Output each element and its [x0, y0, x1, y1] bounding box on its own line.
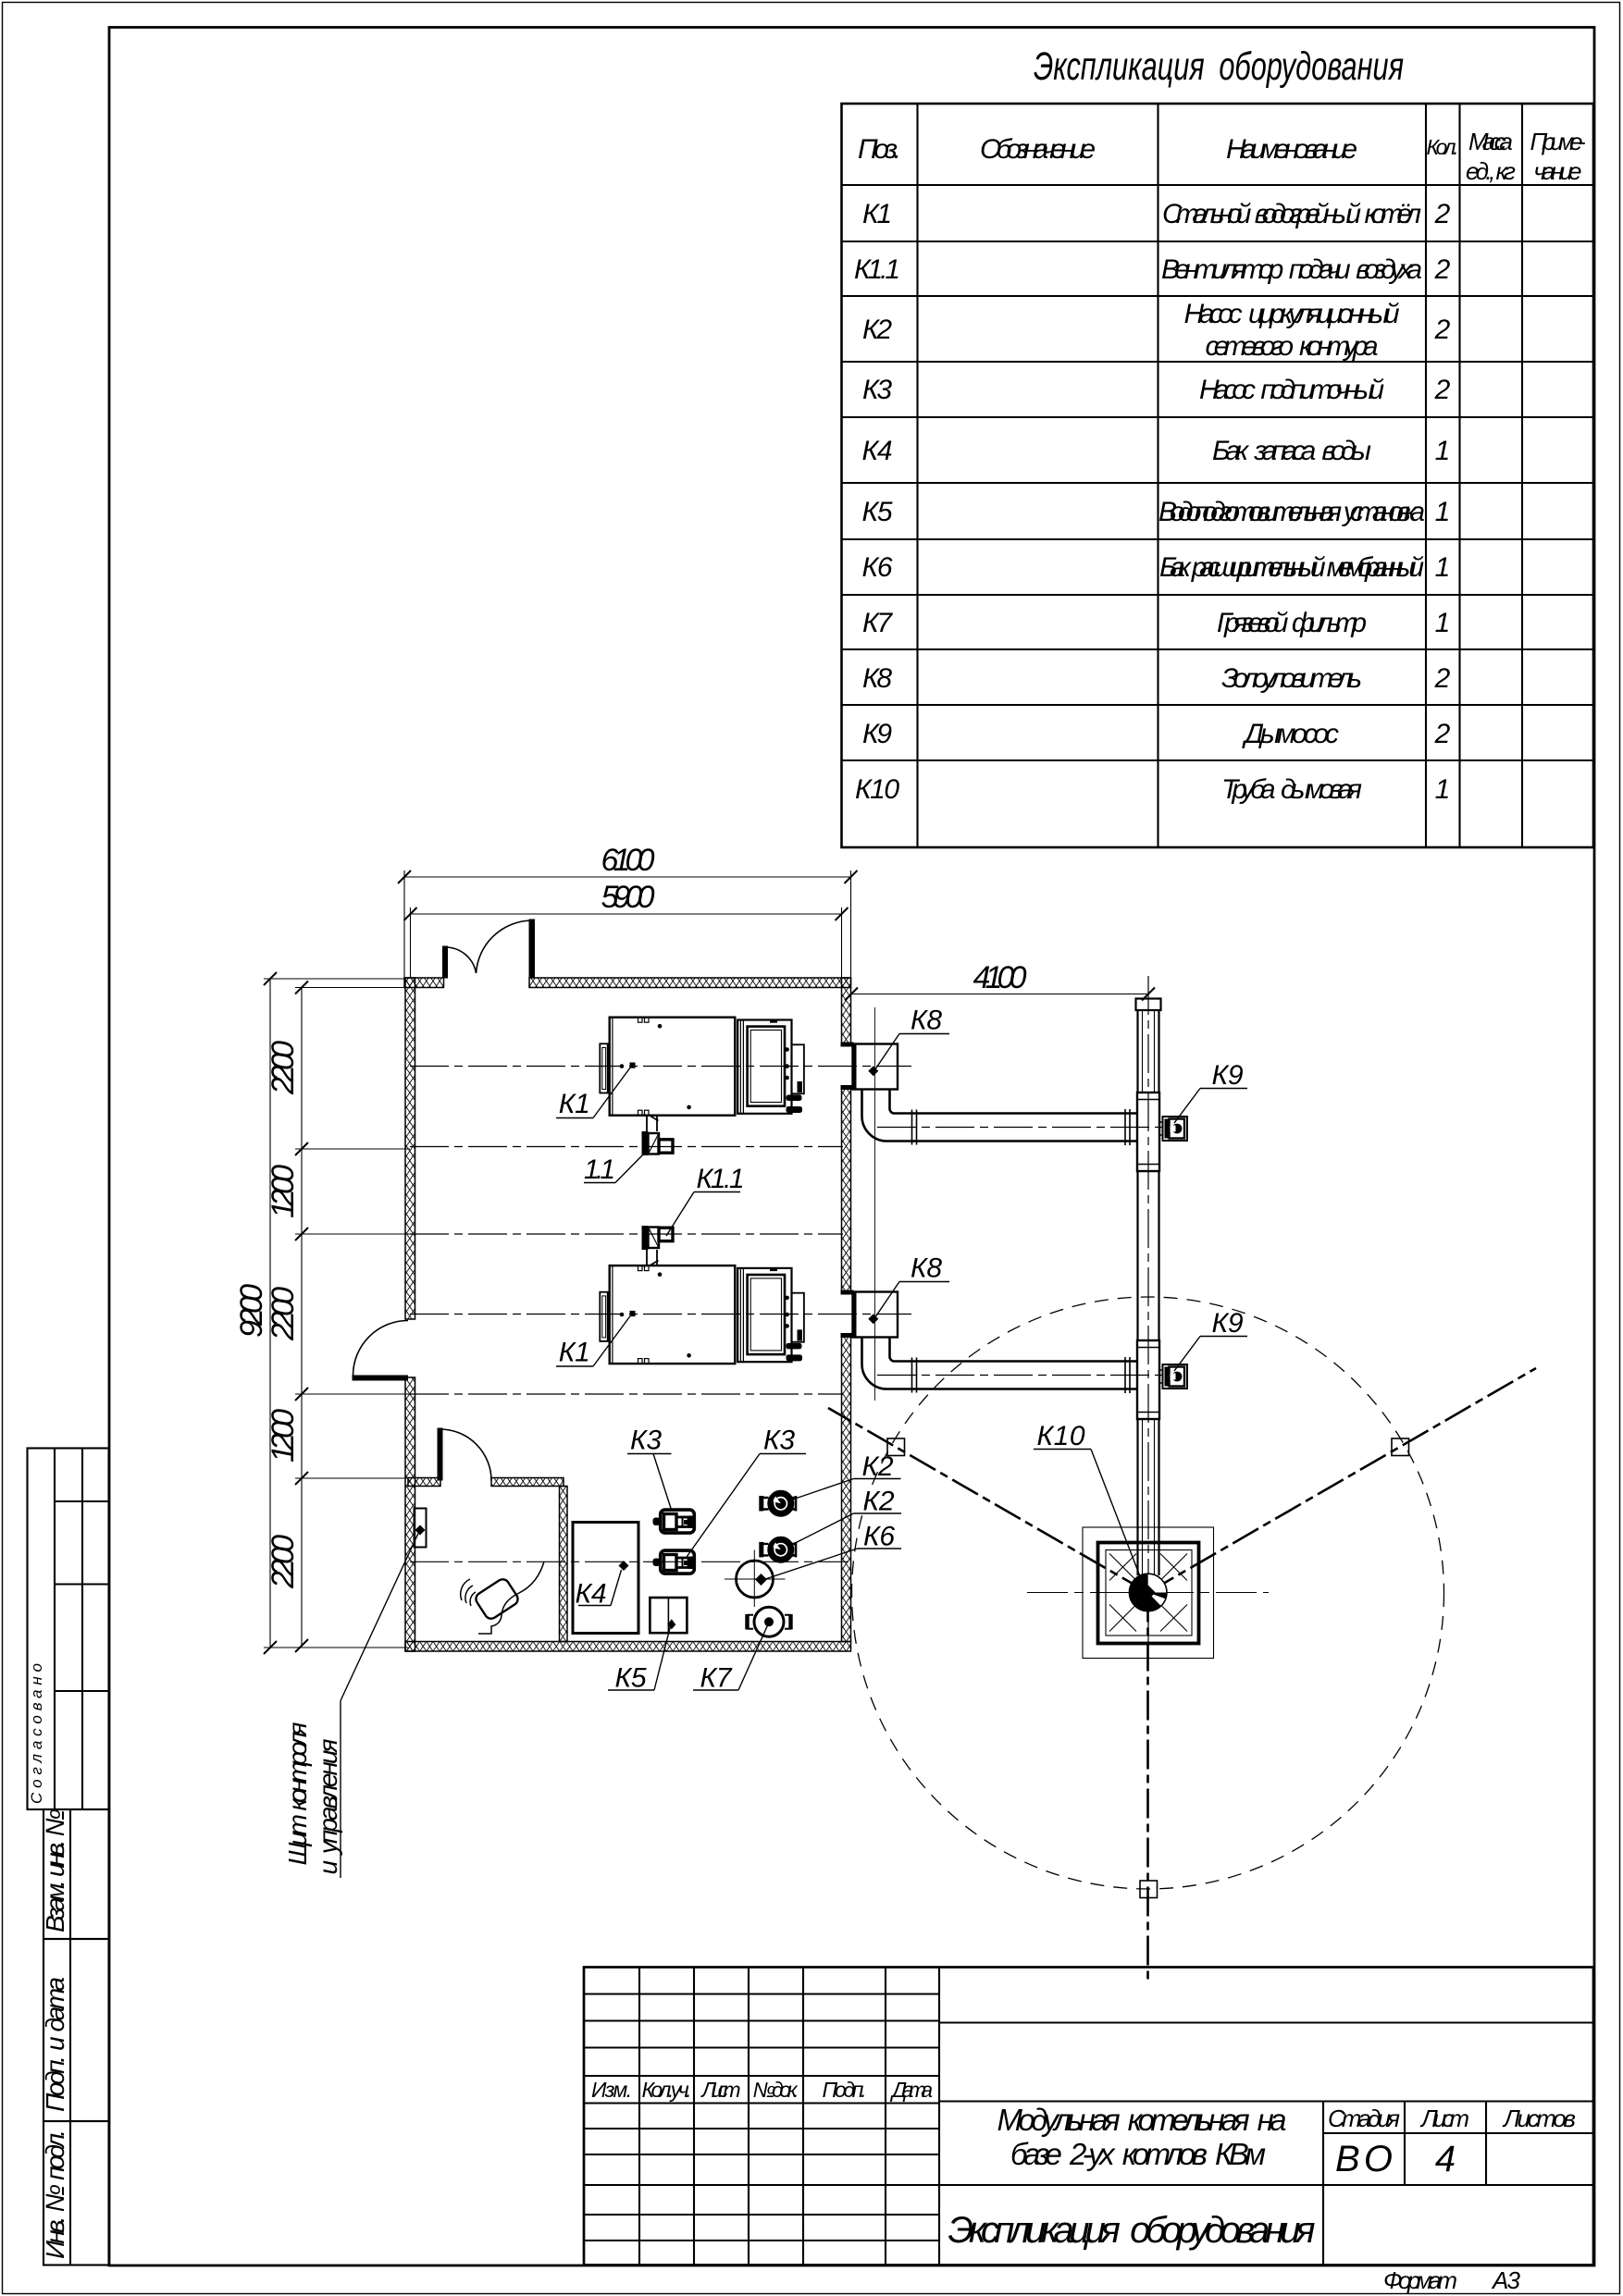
svg-text:1: 1 [1435, 436, 1451, 466]
svg-text:А3: А3 [1491, 2266, 1521, 2294]
svg-text:2200: 2200 [266, 1287, 301, 1341]
svg-text:Кол.: Кол. [1427, 135, 1459, 159]
svg-text:Насос подпиточный: Насос подпиточный [1199, 375, 1384, 405]
svg-text:Подп.: Подп. [823, 2078, 867, 2102]
svg-text:Дымосос: Дымосос [1242, 719, 1339, 749]
svg-text:К3: К3 [763, 1426, 795, 1456]
svg-text:6100: 6100 [601, 843, 655, 878]
svg-text:К8: К8 [911, 1006, 942, 1036]
svg-text:Приме-: Приме- [1530, 128, 1586, 155]
svg-text:Золоуловитель: Золоуловитель [1221, 663, 1362, 694]
svg-text:Бак запаса воды: Бак запаса воды [1212, 436, 1371, 466]
svg-text:Взам. инв. №: Взам. инв. № [41, 1808, 69, 1932]
svg-text:2: 2 [1434, 375, 1451, 405]
svg-text:Согласовано: Согласовано [28, 1663, 45, 1804]
svg-text:К9: К9 [862, 719, 892, 749]
svg-text:К1.1: К1.1 [854, 254, 900, 285]
svg-text:К1: К1 [559, 1089, 590, 1119]
svg-text:К4: К4 [576, 1579, 607, 1610]
svg-text:К6: К6 [863, 1522, 895, 1552]
svg-text:К7: К7 [700, 1663, 733, 1694]
svg-text:2: 2 [1434, 199, 1451, 229]
svg-text:К2: К2 [863, 1487, 895, 1517]
svg-text:4: 4 [1435, 2139, 1456, 2179]
svg-text:2200: 2200 [266, 1041, 301, 1095]
svg-text:К1: К1 [559, 1338, 590, 1368]
svg-text:2: 2 [1434, 315, 1451, 345]
svg-text:Стадия: Стадия [1328, 2105, 1400, 2132]
svg-text:К9: К9 [1212, 1060, 1244, 1091]
svg-text:Поз.: Поз. [858, 134, 901, 165]
svg-text:К9: К9 [1212, 1308, 1244, 1339]
svg-text:К8: К8 [862, 663, 892, 694]
svg-text:К3: К3 [862, 375, 892, 405]
svg-text:Подп. и дата: Подп. и дата [41, 1977, 69, 2112]
svg-text:Грязевой фильтр: Грязевой фильтр [1217, 608, 1367, 638]
svg-text:чание: чание [1534, 157, 1582, 185]
svg-text:Дата: Дата [889, 2078, 933, 2102]
svg-text:К4: К4 [862, 436, 893, 466]
svg-text:9200: 9200 [234, 1284, 269, 1338]
svg-text:Вентилятор подачи воздуха: Вентилятор подачи воздуха [1161, 254, 1422, 285]
svg-text:Щит контроля: Щит контроля [283, 1722, 312, 1865]
svg-text:К5: К5 [615, 1663, 647, 1694]
svg-text:Труба дымовая: Труба дымовая [1221, 774, 1362, 805]
svg-text:Изм.: Изм. [591, 2078, 632, 2102]
svg-text:Экспликация оборудования: Экспликация оборудования [1034, 44, 1404, 89]
svg-text:1: 1 [1435, 552, 1451, 583]
svg-text:и управления: и управления [314, 1738, 342, 1874]
svg-text:Листов: Листов [1502, 2105, 1576, 2132]
svg-text:Наименование: Наименование [1226, 134, 1357, 165]
svg-text:К8: К8 [911, 1253, 942, 1284]
svg-text:Лист: Лист [1419, 2105, 1469, 2132]
svg-text:Бак расширительный мембранный: Бак расширительный мембранный [1159, 552, 1424, 583]
svg-text:Модульная котельная на: Модульная котельная на [997, 2103, 1287, 2137]
svg-text:К6: К6 [862, 552, 893, 583]
svg-text:Обозначение: Обозначение [980, 134, 1096, 165]
svg-text:Насос циркуляционный: Насос циркуляционный [1184, 299, 1400, 329]
svg-text:Экспликация оборудования: Экспликация оборудования [948, 2210, 1316, 2251]
svg-text:5900: 5900 [601, 880, 655, 915]
svg-text:Водоподготовительная установка: Водоподготовительная установка [1158, 497, 1425, 527]
svg-text:1200: 1200 [266, 1165, 301, 1218]
svg-text:2: 2 [1434, 719, 1451, 749]
svg-text:сетевого контура: сетевого контура [1206, 331, 1379, 362]
svg-text:К10: К10 [855, 774, 899, 805]
svg-text:К5: К5 [862, 497, 893, 527]
svg-text:К3: К3 [630, 1426, 662, 1456]
svg-text:Инв. № подл.: Инв. № подл. [41, 2129, 69, 2259]
svg-text:К10: К10 [1037, 1421, 1085, 1451]
svg-text:Кол.уч.: Кол.уч. [642, 2078, 692, 2102]
svg-text:1200: 1200 [266, 1409, 301, 1463]
svg-text:№док.: №док. [753, 2078, 799, 2102]
svg-text:К1: К1 [862, 199, 892, 229]
svg-text:К7: К7 [862, 608, 893, 638]
svg-text:К1.1: К1.1 [697, 1164, 745, 1194]
svg-text:1: 1 [1435, 774, 1451, 805]
svg-text:1: 1 [1435, 608, 1451, 638]
svg-text:4100: 4100 [973, 960, 1027, 995]
svg-text:2200: 2200 [266, 1535, 301, 1589]
svg-text:2: 2 [1434, 254, 1451, 285]
svg-text:К2: К2 [862, 315, 892, 345]
svg-text:Формат: Формат [1383, 2266, 1457, 2294]
svg-text:Стальной водогрейный котёл: Стальной водогрейный котёл [1162, 199, 1421, 229]
svg-text:ВО: ВО [1335, 2139, 1393, 2179]
svg-text:1.1: 1.1 [584, 1154, 615, 1185]
svg-text:К2: К2 [862, 1451, 894, 1482]
svg-text:Масса: Масса [1468, 128, 1513, 155]
svg-text:базе 2-ух котлов КВм: базе 2-ух котлов КВм [1010, 2137, 1266, 2171]
svg-text:ед., кг: ед., кг [1466, 157, 1516, 185]
svg-text:Лист: Лист [700, 2078, 741, 2102]
svg-text:1: 1 [1435, 497, 1451, 527]
svg-text:2: 2 [1434, 663, 1451, 694]
